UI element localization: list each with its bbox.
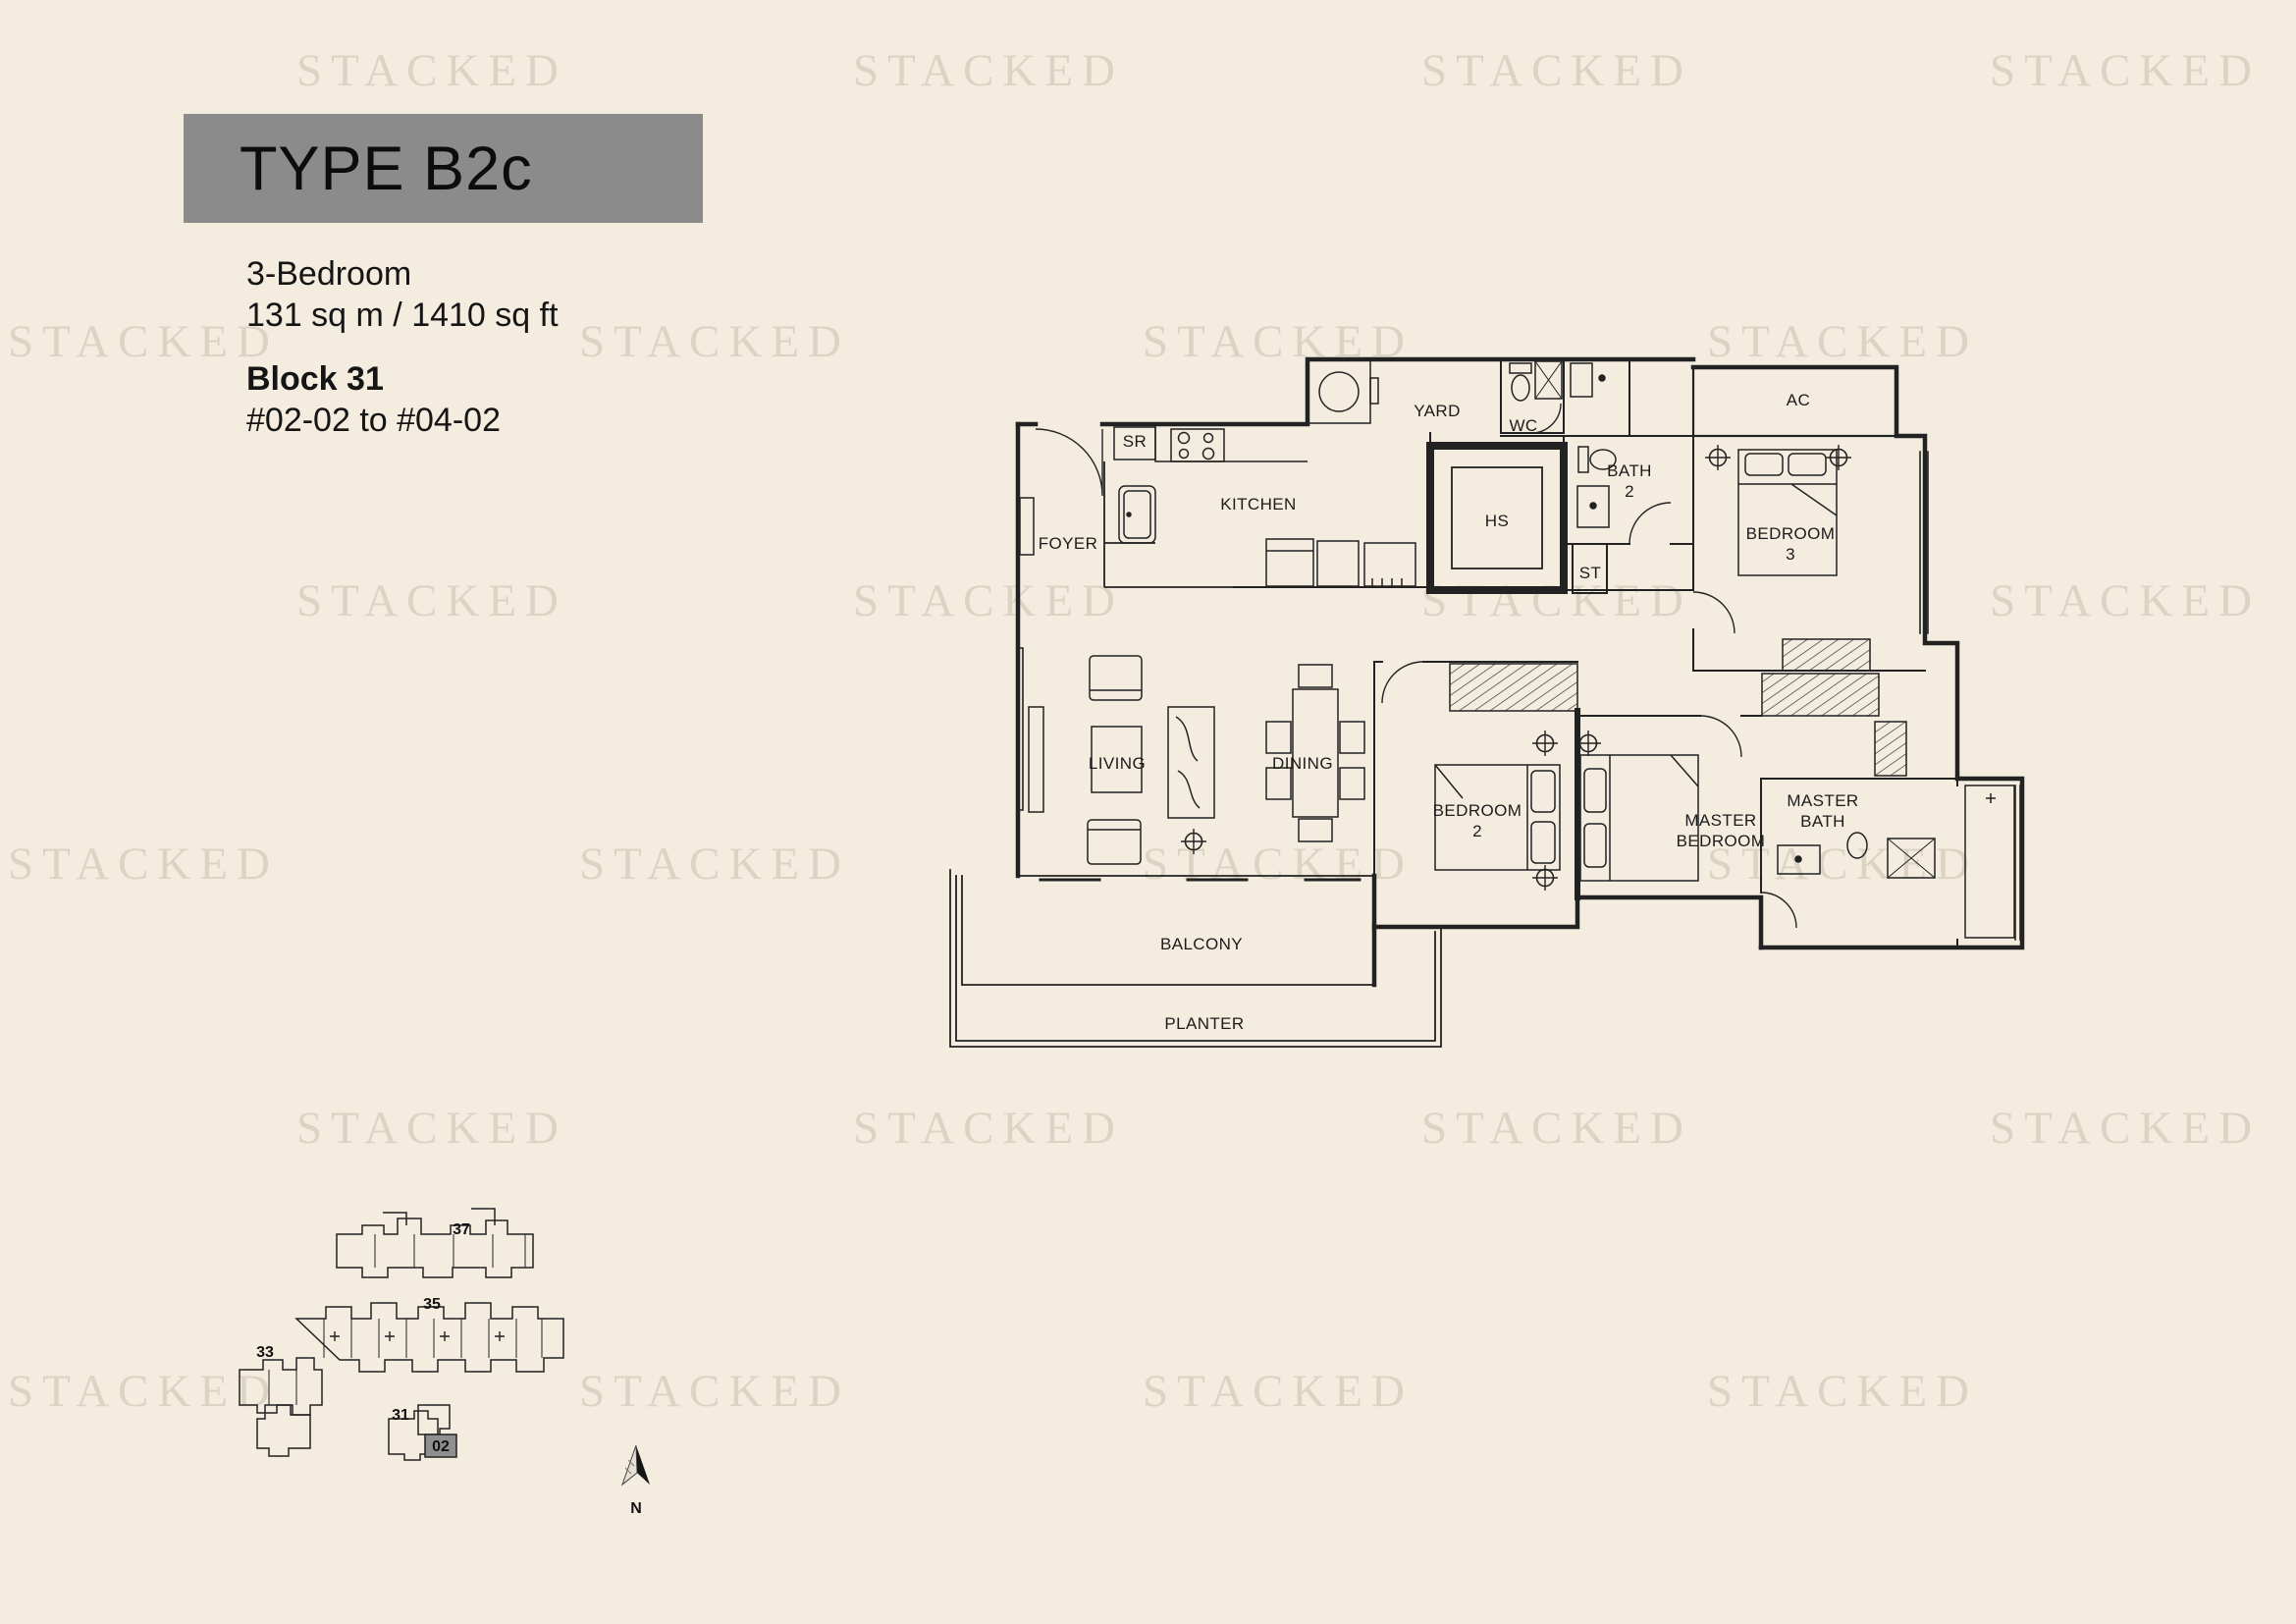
bedroom-count: 3-Bedroom xyxy=(246,253,559,295)
north-label: N xyxy=(630,1500,642,1517)
dining-set-icon xyxy=(1266,665,1364,841)
master-bath-toilet-icon xyxy=(1847,833,1867,858)
block-info: Block 31 #02-02 to #04-02 xyxy=(246,358,501,441)
unit-summary: 3-Bedroom 131 sq m / 1410 sq ft xyxy=(246,253,559,336)
room-labels: FOYERKITCHENSRYARDWCHSBATH2STACBEDROOM3L… xyxy=(1039,391,1859,1033)
room-label-bedroom_2: BEDROOM2 xyxy=(1433,801,1522,840)
unit-range: #02-02 to #04-02 xyxy=(246,400,501,441)
site-block-label-37: 37 xyxy=(453,1221,470,1238)
master-bath-vanity-icon xyxy=(1778,845,1820,874)
block-number: Block 31 xyxy=(246,358,501,400)
brochure-page: STACKEDSTACKEDSTACKEDSTACKEDSTACKEDSTACK… xyxy=(0,0,2296,1624)
north-arrow-icon xyxy=(622,1445,650,1485)
site-block-label-35: 35 xyxy=(423,1296,441,1313)
room-label-kitchen: KITCHEN xyxy=(1220,495,1296,514)
washer-icon xyxy=(1308,360,1378,423)
title-band: TYPE B2c xyxy=(184,114,703,223)
room-label-bath_2: BATH2 xyxy=(1607,461,1652,501)
site-block-label-31: 31 xyxy=(392,1407,409,1424)
wc-toilet-icon xyxy=(1510,363,1531,401)
bath2-sink-icon xyxy=(1577,486,1609,527)
room-label-st: ST xyxy=(1579,564,1602,582)
room-label-master_bedroom: MASTERBEDROOM xyxy=(1677,811,1766,850)
stove-icon xyxy=(1171,429,1224,461)
room-label-ac: AC xyxy=(1787,391,1810,409)
page-title: TYPE B2c xyxy=(240,134,533,204)
floor-plan: FOYERKITCHENSRYARDWCHSBATH2STACBEDROOM3L… xyxy=(942,339,2081,1065)
kitchen-sink-icon xyxy=(1119,486,1155,543)
room-label-dining: DINING xyxy=(1272,754,1333,773)
room-label-bedroom_3: BEDROOM3 xyxy=(1746,524,1836,564)
site-block-label-33: 33 xyxy=(256,1344,274,1361)
room-label-foyer: FOYER xyxy=(1039,534,1098,553)
room-label-planter: PLANTER xyxy=(1164,1014,1244,1033)
unit-area: 131 sq m / 1410 sq ft xyxy=(246,295,559,336)
room-label-sr: SR xyxy=(1123,432,1147,451)
master-bath-shower-icon xyxy=(1888,839,1935,878)
room-label-balcony: BALCONY xyxy=(1160,935,1243,953)
room-label-living: LIVING xyxy=(1089,754,1146,773)
highlighted-unit-label: 02 xyxy=(432,1438,450,1455)
site-plan: 3735333102N xyxy=(226,1203,687,1527)
master-bed-icon xyxy=(1580,755,1698,881)
room-label-yard: YARD xyxy=(1414,402,1461,420)
room-label-hs: HS xyxy=(1485,512,1509,530)
room-label-master_bath: MASTERBATH xyxy=(1787,791,1858,831)
room-label-wc: WC xyxy=(1509,416,1537,435)
